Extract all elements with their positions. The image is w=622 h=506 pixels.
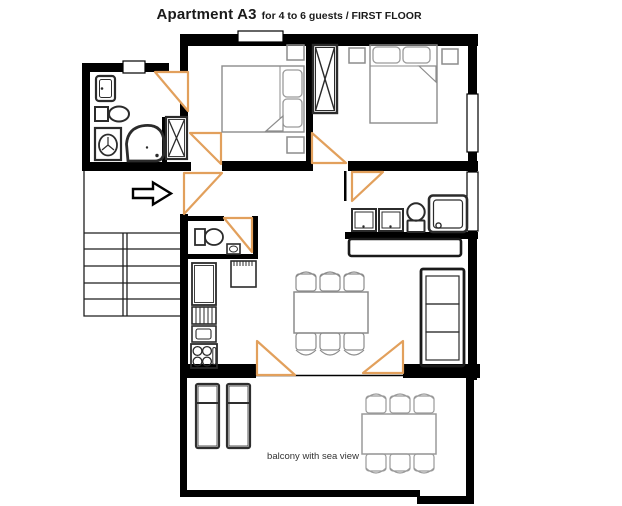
toilet-icon xyxy=(407,203,424,220)
floor-plan-drawing xyxy=(0,0,622,506)
toilet-icon xyxy=(95,107,108,121)
door-swing-balcony-left xyxy=(257,341,295,375)
sun-lounger-icon xyxy=(196,384,219,448)
windows xyxy=(123,31,478,231)
wall-bathroom2-left-thin xyxy=(344,171,347,201)
stair-steps xyxy=(84,233,180,299)
wall-mid-left xyxy=(222,161,306,171)
door-swing-entrance xyxy=(184,173,222,214)
wall-mid-right xyxy=(348,161,478,171)
bedroom-1 xyxy=(222,45,304,153)
window-bedroom1-top xyxy=(238,31,283,42)
stair-center-rail xyxy=(123,233,127,316)
nightstand xyxy=(349,48,365,63)
door-swing-bedroom2 xyxy=(312,133,346,163)
window-bedroom2-right xyxy=(467,94,478,152)
door-swing-balcony-right xyxy=(363,341,403,373)
wc xyxy=(195,229,240,254)
nightstand xyxy=(442,49,458,64)
sofa-cushion xyxy=(426,332,459,360)
bedroom-2 xyxy=(313,45,458,123)
wall-bath-bottom xyxy=(82,162,191,171)
fridge-icon xyxy=(192,263,216,305)
pillow xyxy=(283,70,302,97)
blanket-fold xyxy=(266,116,283,131)
hall-wardrobe xyxy=(166,117,187,159)
kitchen xyxy=(191,261,256,368)
living-room xyxy=(294,239,464,366)
balcony-caption: balcony with sea view xyxy=(267,451,359,462)
toilet-icon xyxy=(195,229,205,245)
bathroom-2 xyxy=(352,196,467,233)
wall-wc-bottom xyxy=(188,254,258,259)
dining-chairs xyxy=(296,272,364,355)
door-swing-bathroom1 xyxy=(155,72,188,111)
wall-balcony-left xyxy=(180,378,187,497)
window-bathroom1-top xyxy=(123,61,145,73)
wall-balcony-bottom-right xyxy=(417,496,474,504)
pillow xyxy=(283,99,302,127)
door-swing-wc xyxy=(224,218,252,252)
blanket-fold xyxy=(419,66,436,82)
sun-loungers xyxy=(196,384,250,448)
wall-balcony-bottom xyxy=(180,490,420,497)
wall-balcony-right xyxy=(466,378,474,497)
floor-plan-page: Apartment A3 for 4 to 6 guests / FIRST F… xyxy=(0,0,622,506)
dining-table-icon xyxy=(294,292,368,333)
door-swing-bathroom2 xyxy=(352,172,383,201)
balcony-table-icon xyxy=(362,414,436,454)
sideboard-icon xyxy=(349,239,461,256)
wall-wc-top-left xyxy=(188,216,224,221)
entrance-arrow-icon xyxy=(133,183,171,205)
bathroom-1 xyxy=(95,76,164,161)
balcony-chairs xyxy=(366,394,434,473)
nightstand xyxy=(287,45,304,60)
wall-living-left xyxy=(180,214,188,378)
window-bathroom2-right xyxy=(467,172,478,231)
sofa-cushion xyxy=(426,276,459,304)
pillow xyxy=(373,47,400,63)
wall-wc-right xyxy=(253,216,258,259)
nightstand xyxy=(287,137,304,153)
sun-lounger-icon xyxy=(227,384,250,448)
door-swing-bedroom1 xyxy=(190,133,221,164)
sofa-icon xyxy=(421,269,464,366)
pillow xyxy=(403,47,430,63)
stairwell xyxy=(84,171,180,316)
wall-bath-left xyxy=(82,63,90,171)
sofa-cushion xyxy=(426,304,459,332)
